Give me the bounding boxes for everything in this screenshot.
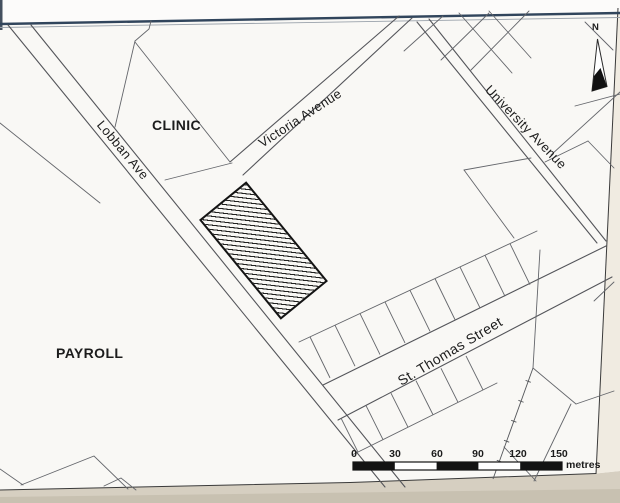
scale-unit-label: metres xyxy=(566,459,600,471)
scale-bar xyxy=(353,462,562,470)
map-linework xyxy=(0,0,620,503)
scale-tick-90: 90 xyxy=(472,448,484,460)
parcel-lines xyxy=(0,11,620,490)
lots-northwest-st-thomas xyxy=(310,244,530,378)
area-label-payroll: PAYROLL xyxy=(56,345,123,361)
map-frame xyxy=(0,8,618,490)
north-arrow-icon xyxy=(592,39,607,91)
scale-tick-0: 0 xyxy=(351,448,357,460)
scale-tick-30: 30 xyxy=(389,448,401,460)
photo-corner-mark xyxy=(0,0,3,30)
north-label: N xyxy=(592,22,599,33)
scale-tick-120: 120 xyxy=(509,448,527,460)
roads xyxy=(8,16,612,487)
area-label-clinic: CLINIC xyxy=(152,117,201,133)
scale-tick-60: 60 xyxy=(431,448,443,460)
map-canvas: CLINIC PAYROLL Lobban Ave Victoria Avenu… xyxy=(0,0,620,503)
